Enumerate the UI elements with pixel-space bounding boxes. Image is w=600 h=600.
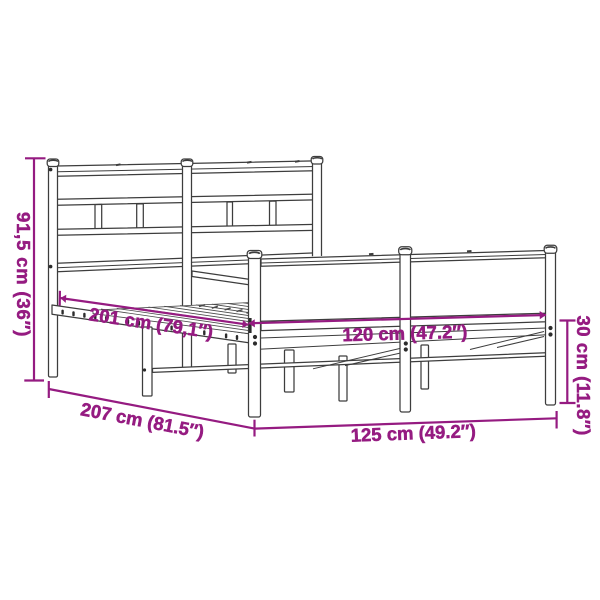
svg-text:207 cm (81.5″): 207 cm (81.5″) — [79, 398, 206, 442]
svg-text:120 cm (47.2″): 120 cm (47.2″) — [342, 321, 468, 345]
svg-text:30 cm (11.8″): 30 cm (11.8″) — [573, 316, 594, 436]
svg-text:125 cm (49.2″): 125 cm (49.2″) — [350, 420, 476, 446]
svg-text:91,5 cm (36″): 91,5 cm (36″) — [13, 212, 34, 337]
